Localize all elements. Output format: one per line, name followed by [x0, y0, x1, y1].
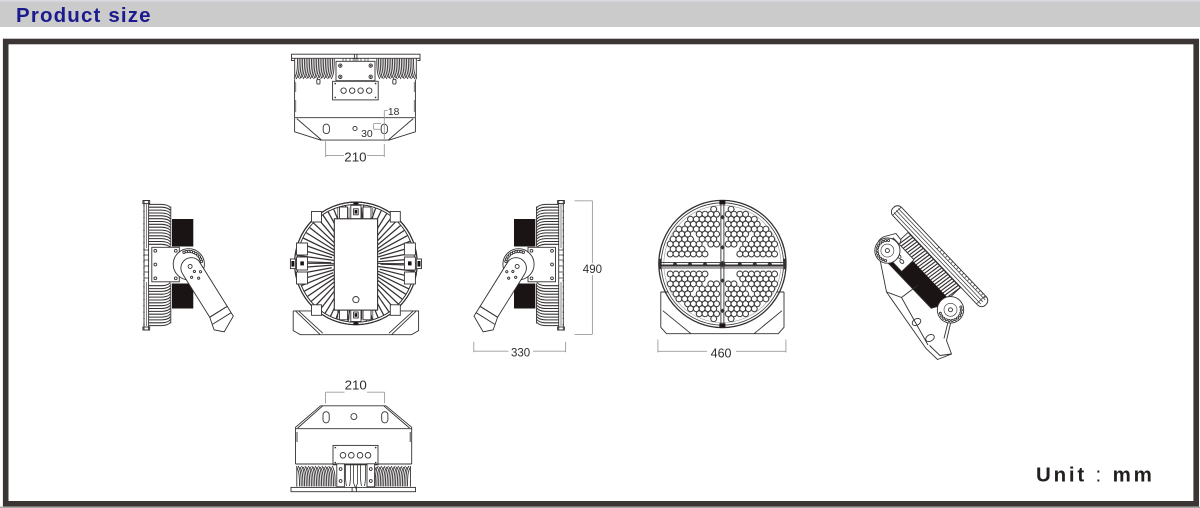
svg-text:460: 460 [711, 347, 732, 361]
svg-text:30: 30 [361, 129, 373, 140]
svg-text:490: 490 [583, 264, 602, 276]
svg-text:330: 330 [511, 348, 530, 360]
svg-text:Unit : mm: Unit : mm [1036, 464, 1155, 487]
svg-text:Product size: Product size [16, 4, 152, 27]
svg-text:18: 18 [388, 107, 400, 118]
svg-text:210: 210 [344, 150, 366, 165]
svg-text:210: 210 [345, 378, 367, 393]
